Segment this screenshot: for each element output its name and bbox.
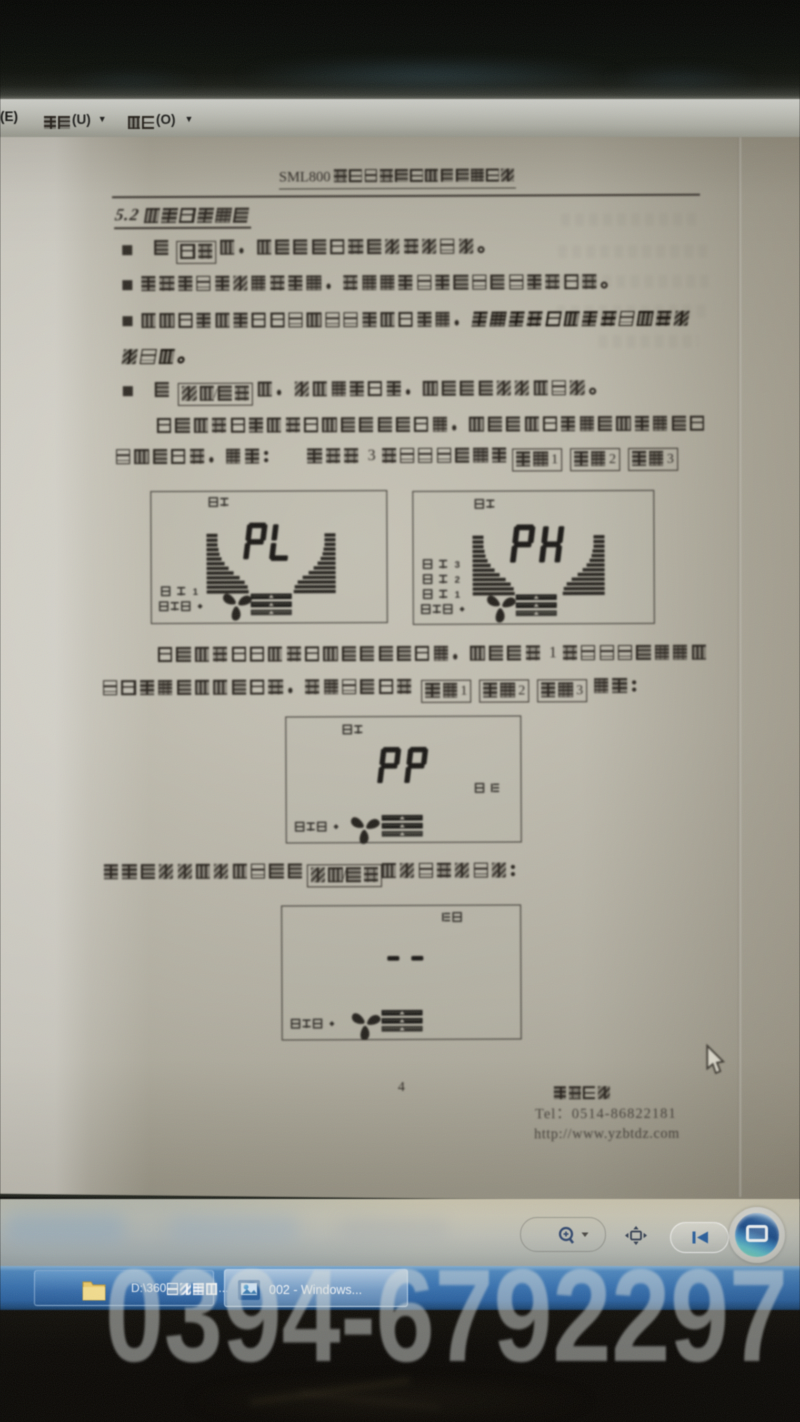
svg-text:1: 1: [455, 590, 461, 601]
svg-text:3: 3: [455, 560, 460, 571]
svg-text:2: 2: [455, 575, 460, 586]
svg-text:1: 1: [193, 587, 199, 598]
